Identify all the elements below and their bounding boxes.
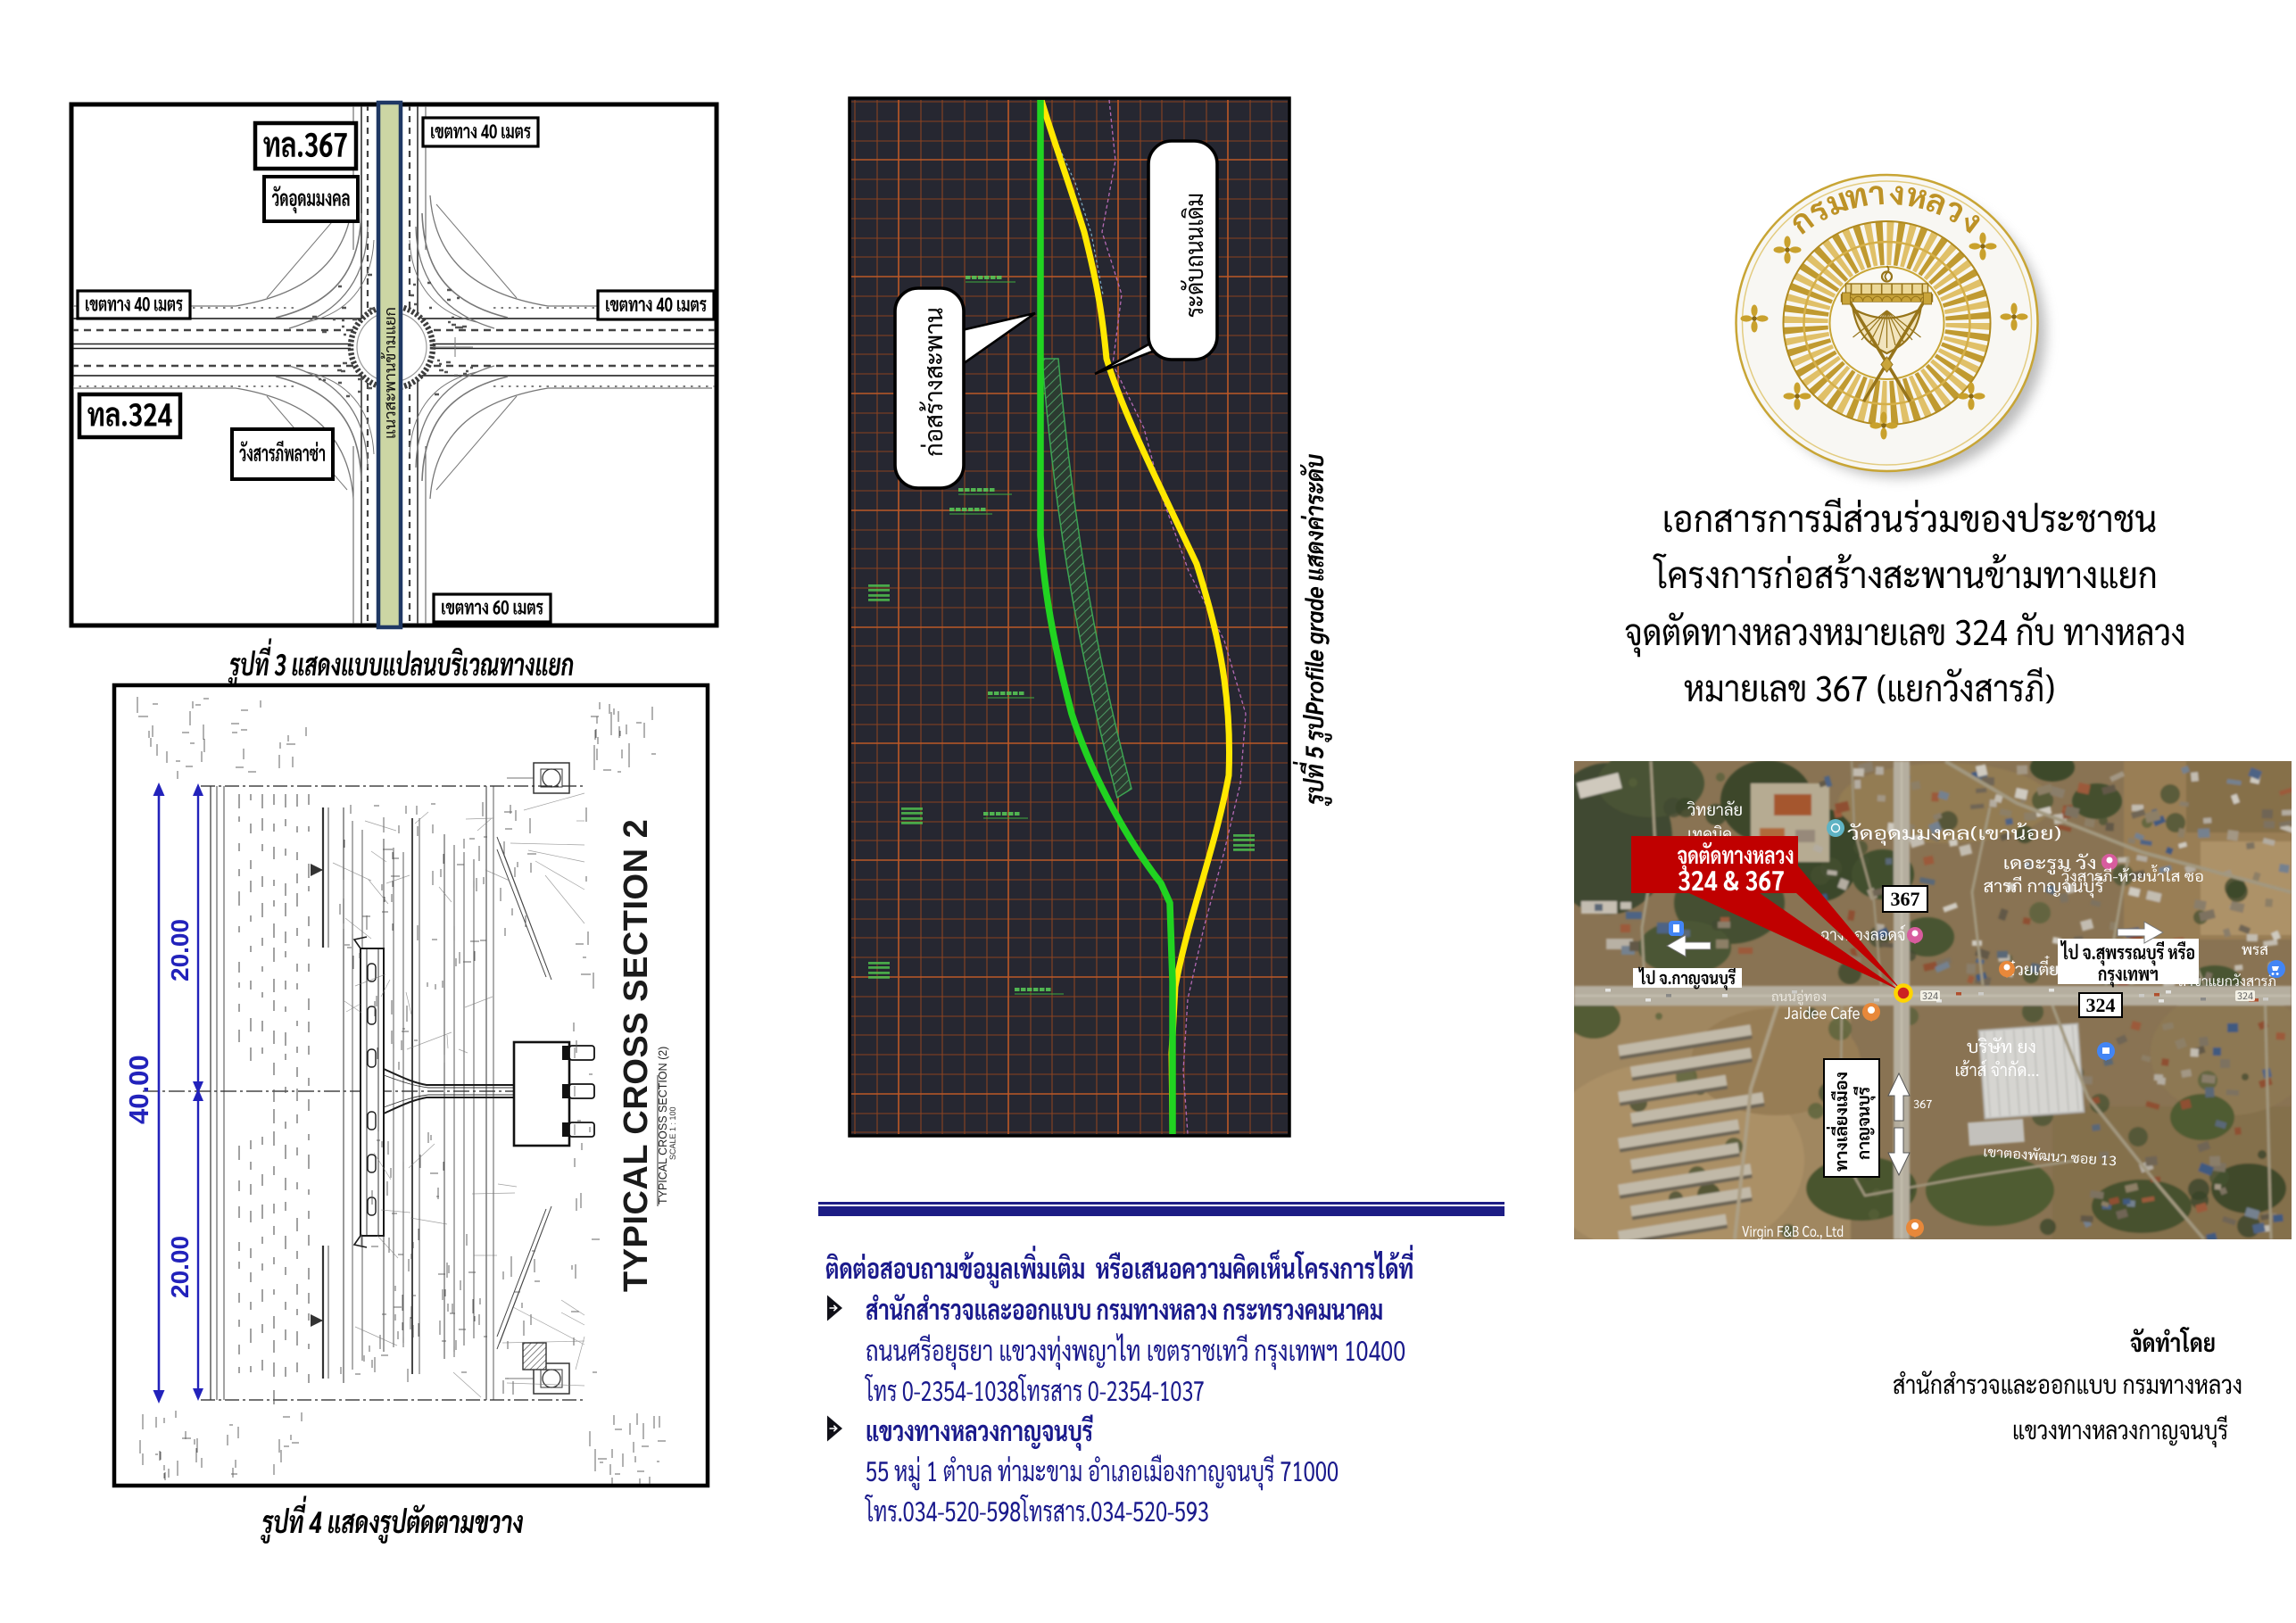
svg-text:20.00: 20.00 <box>166 1236 194 1298</box>
svg-text:20.00: 20.00 <box>166 919 194 981</box>
svg-text:TYPICAL CROSS SECTION (2): TYPICAL CROSS SECTION (2) <box>657 1047 669 1205</box>
svg-text:367: 367 <box>1891 888 1920 910</box>
svg-text:TYPICAL CROSS SECTION 2: TYPICAL CROSS SECTION 2 <box>618 819 655 1292</box>
svg-text:40.00: 40.00 <box>123 1055 154 1124</box>
svg-text:SCALE 1 : 100: SCALE 1 : 100 <box>668 1106 677 1160</box>
svg-text:324: 324 <box>2086 994 2116 1016</box>
